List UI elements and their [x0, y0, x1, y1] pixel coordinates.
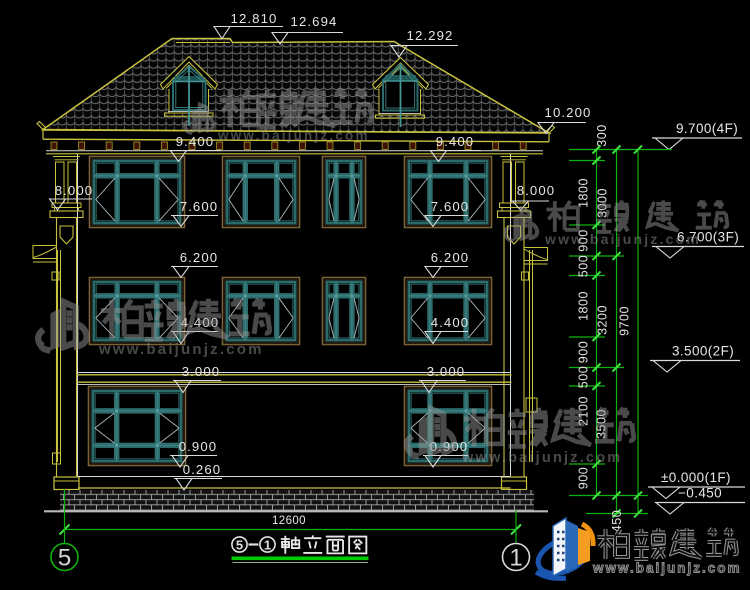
svg-text:8.000: 8.000	[55, 183, 94, 198]
svg-text:www.baijunjz.com: www.baijunjz.com	[461, 450, 622, 466]
svg-text:8.000: 8.000	[517, 183, 556, 198]
svg-text:12.292: 12.292	[407, 28, 454, 43]
svg-text:1: 1	[264, 538, 271, 553]
svg-text:6.200: 6.200	[431, 250, 470, 265]
svg-text:500: 500	[577, 366, 591, 388]
svg-text:−0.450: −0.450	[678, 486, 722, 501]
svg-text:900: 900	[577, 341, 591, 363]
svg-text:900: 900	[577, 467, 591, 489]
svg-text:www.baijunjz.com: www.baijunjz.com	[544, 231, 701, 247]
svg-text:5: 5	[236, 538, 243, 553]
svg-text:5: 5	[58, 545, 71, 572]
svg-text:3.000: 3.000	[427, 364, 466, 379]
svg-text:12600: 12600	[272, 515, 306, 527]
svg-text:1: 1	[509, 545, 522, 572]
svg-text:12.694: 12.694	[291, 14, 338, 29]
svg-text:12.810: 12.810	[231, 11, 278, 26]
svg-text:4.400: 4.400	[431, 315, 470, 330]
svg-text:www.baijunjz.com: www.baijunjz.com	[217, 128, 370, 143]
svg-text:9.700(4F): 9.700(4F)	[676, 121, 738, 136]
svg-text:10.200: 10.200	[545, 105, 592, 120]
svg-text:0.900: 0.900	[179, 439, 218, 454]
svg-text:1800: 1800	[577, 291, 591, 321]
svg-text:9.400: 9.400	[176, 134, 215, 149]
svg-text:500: 500	[577, 255, 591, 277]
svg-text:1800: 1800	[577, 178, 591, 208]
svg-text:3200: 3200	[596, 305, 610, 335]
svg-text:6.200: 6.200	[180, 250, 219, 265]
svg-text:7.600: 7.600	[431, 199, 470, 214]
svg-text:300: 300	[595, 124, 609, 146]
svg-text:7.600: 7.600	[180, 199, 219, 214]
svg-text:3.000: 3.000	[182, 364, 221, 379]
svg-text:9.400: 9.400	[436, 134, 475, 149]
svg-text:±0.000(1F): ±0.000(1F)	[661, 470, 731, 485]
svg-text:9700: 9700	[618, 306, 632, 336]
svg-text:www.baijunjz.com: www.baijunjz.com	[98, 341, 264, 358]
svg-text:www.baijunjz.com: www.baijunjz.com	[592, 561, 742, 576]
svg-text:450: 450	[610, 510, 624, 532]
svg-text:3.500(2F): 3.500(2F)	[672, 344, 734, 359]
svg-text:0.260: 0.260	[183, 462, 222, 477]
